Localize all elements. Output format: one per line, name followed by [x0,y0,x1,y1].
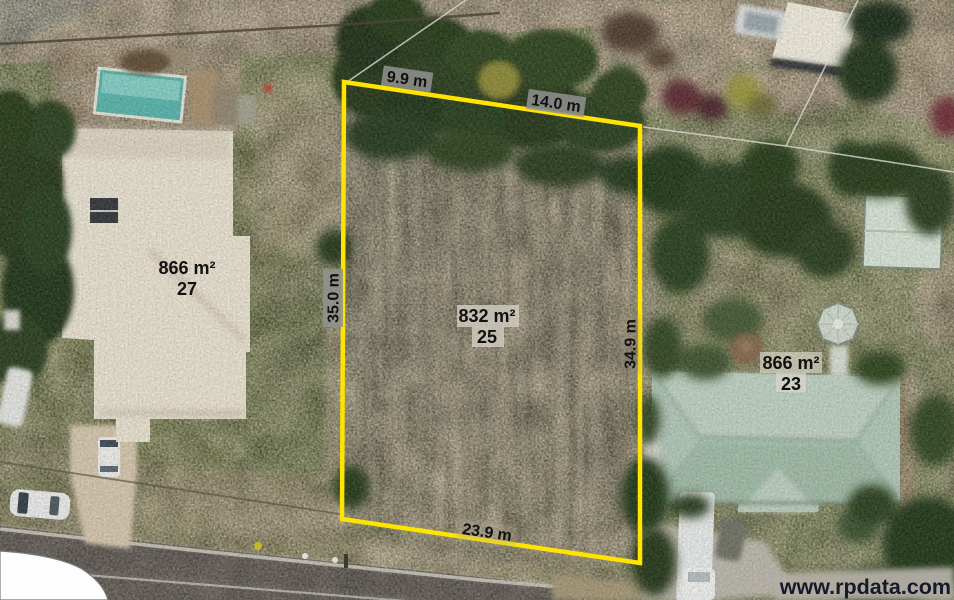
svg-text:35.0 m: 35.0 m [326,273,343,323]
svg-text:www.rpdata.com: www.rpdata.com [779,575,951,599]
svg-text:832 m²: 832 m² [458,306,515,326]
svg-text:866 m²: 866 m² [762,353,819,373]
svg-text:34.9 m: 34.9 m [623,319,640,369]
svg-text:27: 27 [177,279,197,299]
svg-text:866 m²: 866 m² [158,258,215,278]
svg-text:25: 25 [477,327,497,347]
svg-text:23: 23 [781,374,801,394]
